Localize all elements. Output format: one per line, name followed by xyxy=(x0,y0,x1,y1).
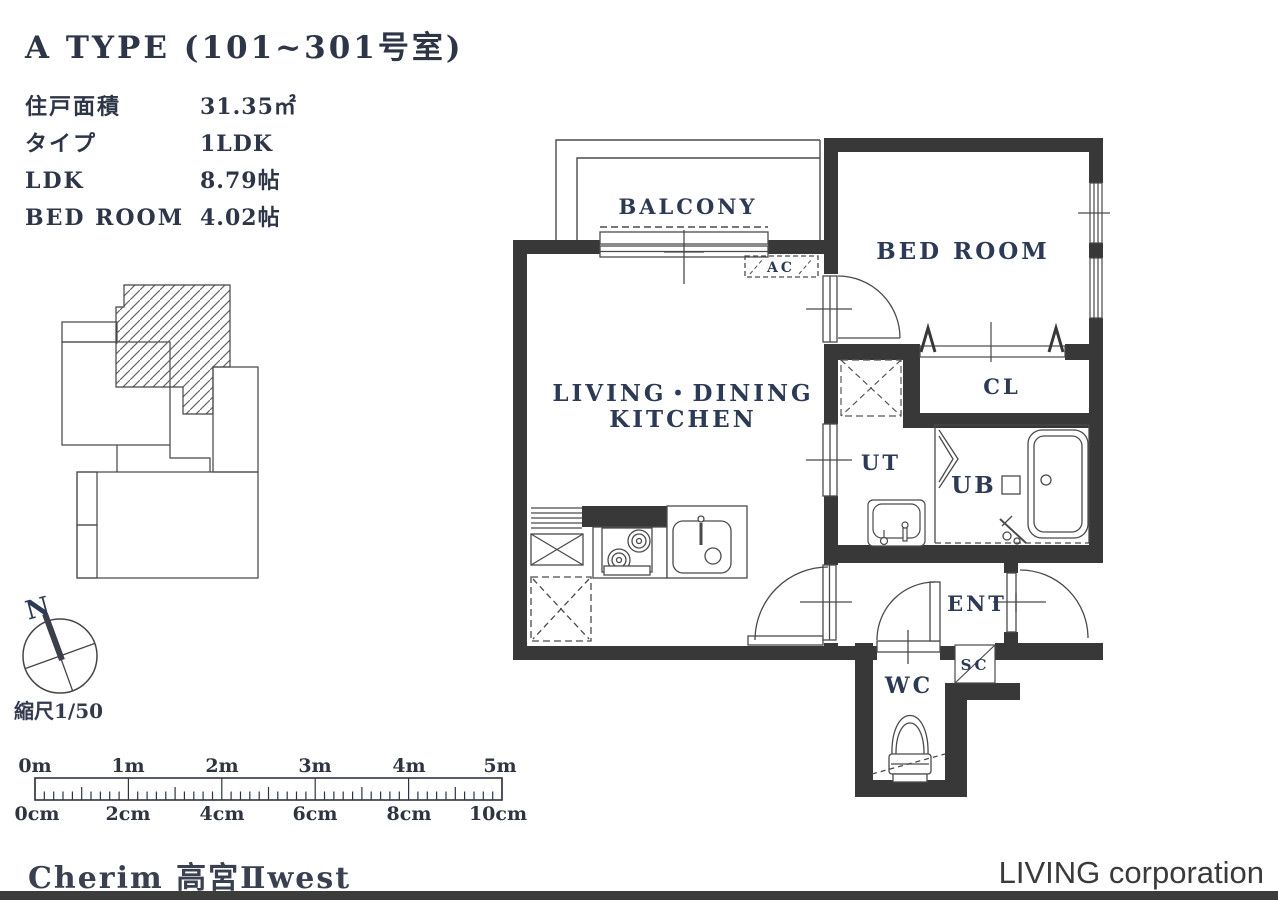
wc-label: WC xyxy=(884,673,933,699)
shoe-closet-label: SC xyxy=(961,656,990,674)
vanity-sink xyxy=(868,500,925,546)
site-outline xyxy=(117,445,210,472)
north-compass-icon: N xyxy=(22,591,97,693)
balcony-window xyxy=(600,230,768,284)
kitchen-counter xyxy=(531,506,747,641)
ruler-label: 1m xyxy=(111,755,144,777)
bedroom-label: BED ROOM xyxy=(876,238,1050,265)
ruler-meter-labels: 0m 1m 2m 3m 4m 5m xyxy=(18,755,516,777)
floor-plan: BALCONY BED ROOM LIVING・DINING KITCHEN C… xyxy=(513,138,1110,797)
balcony-railing xyxy=(556,140,820,243)
ruler-label: 0m xyxy=(18,755,51,777)
pipe-space xyxy=(841,360,901,416)
ruler-label: 5m xyxy=(483,755,516,777)
utility-label: UT xyxy=(861,450,901,475)
ruler-label: 6cm xyxy=(293,803,338,825)
wc-door xyxy=(877,582,940,664)
company-logo: LIVING corporation xyxy=(999,855,1264,891)
entrance-label: ENT xyxy=(947,591,1007,616)
footer-divider-bar xyxy=(0,891,1278,900)
ruler-cm-labels: 0cm 2cm 4cm 6cm 8cm 10cm xyxy=(15,803,528,825)
ldk-label-line1: LIVING・DINING xyxy=(552,380,813,407)
ruler-label: 4m xyxy=(392,755,425,777)
ruler-label: 2m xyxy=(205,755,238,777)
site-outline xyxy=(77,472,258,578)
stove xyxy=(602,528,652,575)
plan-canvas: N 縮尺1/50 0m 1m 2m 3m 4m 5m 0cm 2cm 4cm 6… xyxy=(0,0,1278,914)
ruler-label: 2cm xyxy=(106,803,151,825)
site-map xyxy=(62,285,258,578)
ldk-label-line2: KITCHEN xyxy=(609,406,756,433)
entrance-door xyxy=(993,562,1088,643)
north-label: N xyxy=(22,591,53,626)
scale-note: 縮尺1/50 xyxy=(14,699,103,723)
scale-ruler: 0m 1m 2m 3m 4m 5m 0cm 2cm 4cm 6cm 8cm 10… xyxy=(15,755,528,825)
ruler-label: 0cm xyxy=(15,803,60,825)
ruler-label: 8cm xyxy=(387,803,432,825)
ac-label: AC xyxy=(766,260,795,276)
ruler-label: 4cm xyxy=(200,803,245,825)
toilet xyxy=(872,716,945,783)
closet-door xyxy=(920,322,1065,362)
site-outline xyxy=(213,367,258,472)
site-outline xyxy=(77,525,97,578)
ruler-label: 3m xyxy=(298,755,331,777)
closet-label: CL xyxy=(983,374,1020,399)
site-outline xyxy=(77,472,97,525)
ruler-ticks xyxy=(35,778,502,800)
ruler-label: 10cm xyxy=(469,803,527,825)
kitchen-shelf xyxy=(531,508,582,528)
balcony-label: BALCONY xyxy=(618,194,757,219)
ldk-hall-door xyxy=(748,565,852,645)
bathtub xyxy=(1028,430,1088,538)
site-unit-highlight xyxy=(116,285,230,414)
site-outline xyxy=(62,322,117,342)
floor-plan-page: A TYPE (101~301号室) 住戸面積 31.35㎡ タイプ 1LDK … xyxy=(0,0,1278,914)
utility-door xyxy=(806,424,852,496)
room-labels: BALCONY BED ROOM LIVING・DINING KITCHEN C… xyxy=(552,194,1049,699)
kitchen-sink xyxy=(673,516,731,573)
bedroom-door xyxy=(806,276,900,342)
bath-label: UB xyxy=(951,472,997,499)
